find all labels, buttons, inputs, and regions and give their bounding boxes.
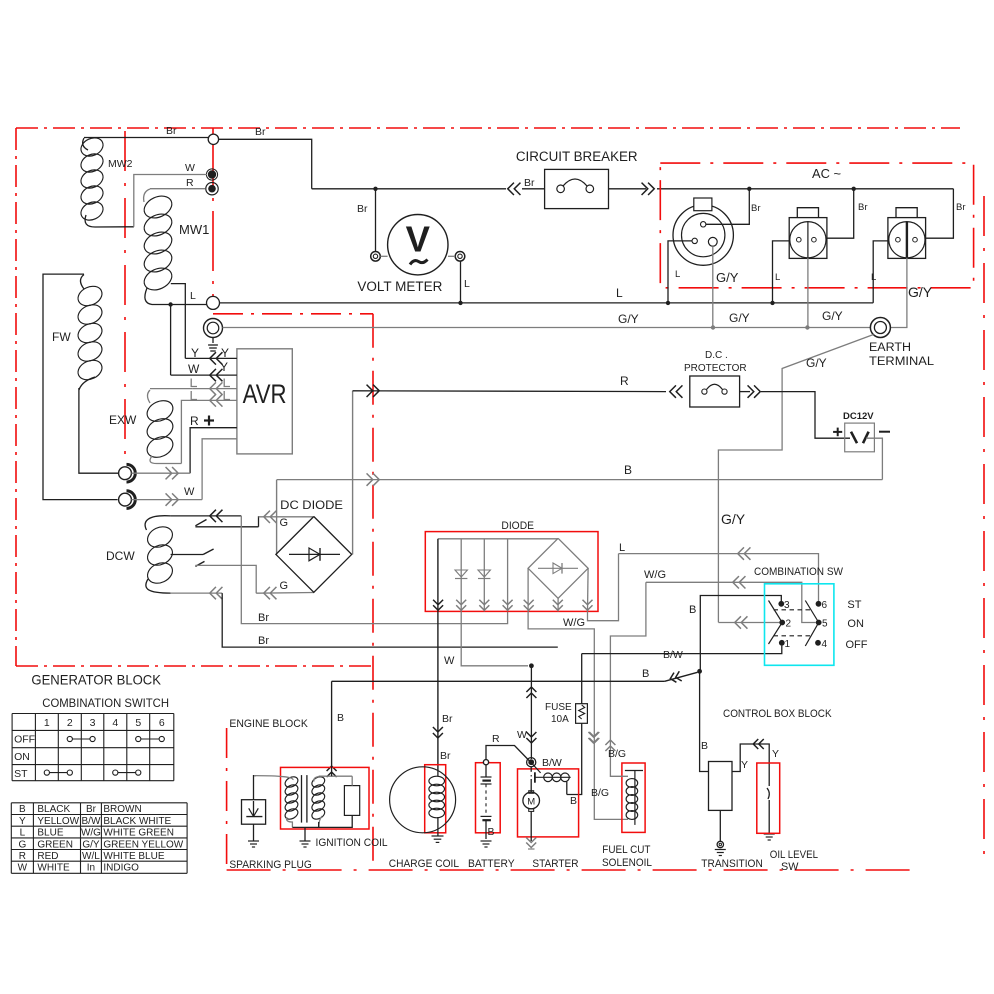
svg-text:G: G <box>280 580 289 592</box>
svg-text:1: 1 <box>785 639 791 650</box>
svg-text:G/Y: G/Y <box>721 511 746 527</box>
svg-text:4: 4 <box>822 639 828 650</box>
svg-text:Br: Br <box>86 804 97 815</box>
svg-text:L: L <box>616 286 623 300</box>
svg-text:Br: Br <box>255 126 266 138</box>
svg-text:YELLOW: YELLOW <box>37 816 79 827</box>
svg-text:G/Y: G/Y <box>806 356 827 370</box>
svg-text:AVR: AVR <box>243 379 287 409</box>
svg-text:G/Y: G/Y <box>618 312 639 326</box>
svg-text:GREEN: GREEN <box>37 839 73 850</box>
svg-text:W: W <box>184 486 195 498</box>
svg-text:Y: Y <box>741 759 748 771</box>
svg-text:B: B <box>488 826 495 838</box>
svg-text:D.C .: D.C . <box>705 350 728 361</box>
svg-text:Br: Br <box>858 202 868 213</box>
svg-text:Y: Y <box>772 748 779 760</box>
svg-text:G: G <box>18 839 26 850</box>
svg-text:STARTER: STARTER <box>532 858 578 870</box>
svg-text:OFF: OFF <box>846 639 868 651</box>
svg-text:BLUE: BLUE <box>37 828 63 839</box>
svg-text:Br: Br <box>442 713 453 725</box>
svg-text:L: L <box>190 290 196 302</box>
svg-text:B/G: B/G <box>591 787 609 799</box>
svg-text:V: V <box>406 218 431 259</box>
svg-text:R: R <box>492 733 500 745</box>
svg-text:CONTROL BOX BLOCK: CONTROL BOX BLOCK <box>723 708 832 720</box>
svg-text:FUEL CUT: FUEL CUT <box>602 844 651 856</box>
svg-text:ST: ST <box>847 599 861 611</box>
svg-text:W: W <box>18 863 28 874</box>
svg-text:6: 6 <box>822 600 828 611</box>
svg-text:G/Y: G/Y <box>716 270 739 285</box>
svg-text:W: W <box>185 162 195 174</box>
svg-text:OFF: OFF <box>14 734 35 746</box>
svg-text:DC12V: DC12V <box>843 411 874 422</box>
svg-text:RED: RED <box>37 851 58 862</box>
svg-text:FW: FW <box>52 330 71 344</box>
svg-text:Y: Y <box>220 360 228 374</box>
svg-text:B: B <box>689 604 696 616</box>
svg-text:WHITE BLUE: WHITE BLUE <box>103 851 164 862</box>
svg-text:L: L <box>675 269 680 280</box>
svg-text:ST: ST <box>14 768 28 780</box>
svg-text:AC ~: AC ~ <box>812 167 841 181</box>
svg-text:R: R <box>620 374 629 388</box>
svg-text:GREEN YELLOW: GREEN YELLOW <box>103 839 183 850</box>
svg-text:R: R <box>190 414 199 428</box>
svg-text:Br: Br <box>258 635 269 647</box>
svg-text:OIL LEVEL: OIL LEVEL <box>770 849 818 861</box>
svg-text:VOLT METER: VOLT METER <box>357 279 442 294</box>
svg-text:CIRCUIT BREAKER: CIRCUIT BREAKER <box>516 149 638 164</box>
svg-text:In: In <box>87 863 95 874</box>
svg-text:W/L: W/L <box>82 851 100 862</box>
svg-text:Br: Br <box>751 203 761 214</box>
svg-text:B: B <box>701 740 708 752</box>
svg-text:TERMINAL: TERMINAL <box>869 354 934 368</box>
svg-text:WHITE GREEN: WHITE GREEN <box>103 828 174 839</box>
svg-text:10A: 10A <box>551 714 569 725</box>
svg-text:B: B <box>570 795 577 807</box>
svg-text:ON: ON <box>14 751 30 763</box>
svg-text:2: 2 <box>786 619 792 630</box>
svg-text:COMBINATION SW: COMBINATION SW <box>754 566 844 578</box>
svg-text:B/G: B/G <box>608 748 626 760</box>
svg-text:COMBINATION SWITCH: COMBINATION SWITCH <box>42 696 169 710</box>
svg-text:W: W <box>444 655 455 667</box>
svg-text:L: L <box>464 278 470 290</box>
svg-text:G: G <box>280 517 289 529</box>
svg-text:G/Y: G/Y <box>82 839 100 850</box>
svg-text:R: R <box>186 177 194 189</box>
svg-text:Y: Y <box>19 816 26 827</box>
svg-text:SOLENOIL: SOLENOIL <box>602 857 652 869</box>
svg-text:GENERATOR BLOCK: GENERATOR BLOCK <box>31 672 161 688</box>
svg-text:WHITE: WHITE <box>37 863 70 874</box>
svg-text:Br: Br <box>956 202 966 213</box>
svg-text:B: B <box>337 712 344 724</box>
svg-text:ENGINE BLOCK: ENGINE BLOCK <box>229 718 308 730</box>
svg-text:L: L <box>619 542 625 554</box>
svg-text:W: W <box>188 362 200 376</box>
svg-text:3: 3 <box>90 717 96 729</box>
svg-text:TRANSITION: TRANSITION <box>701 858 763 870</box>
svg-text:G/Y: G/Y <box>822 309 843 323</box>
svg-text:5: 5 <box>822 619 828 630</box>
svg-text:B/W: B/W <box>663 649 683 661</box>
svg-text:IGNITION COIL: IGNITION COIL <box>316 837 388 849</box>
svg-text:W/G: W/G <box>644 569 666 581</box>
svg-text:DIODE: DIODE <box>501 520 534 532</box>
svg-text:Y: Y <box>221 346 229 360</box>
svg-text:B/W: B/W <box>542 757 562 769</box>
svg-text:BLACK WHITE: BLACK WHITE <box>103 816 171 827</box>
svg-text:MW1: MW1 <box>179 222 209 237</box>
svg-text:DCW: DCW <box>106 549 135 563</box>
svg-text:4: 4 <box>112 717 118 729</box>
svg-text:W/G: W/G <box>563 617 585 629</box>
svg-text:2: 2 <box>67 717 73 729</box>
svg-text:B: B <box>19 804 26 815</box>
svg-text:L: L <box>20 828 26 839</box>
svg-text:L: L <box>871 272 876 283</box>
svg-text:G/Y: G/Y <box>908 284 933 300</box>
svg-text:Br: Br <box>166 125 177 137</box>
svg-text:BATTERY: BATTERY <box>468 858 515 870</box>
svg-text:SW: SW <box>781 861 799 873</box>
svg-text:W/G: W/G <box>81 828 101 839</box>
svg-text:G/Y: G/Y <box>729 311 750 325</box>
svg-text:R: R <box>19 851 26 862</box>
svg-text:B/W: B/W <box>82 816 101 827</box>
svg-text:5: 5 <box>135 717 141 729</box>
svg-text:PROTECTOR: PROTECTOR <box>684 363 747 374</box>
svg-text:Br: Br <box>258 612 269 624</box>
svg-text:1: 1 <box>44 717 50 729</box>
svg-text:M: M <box>527 797 535 808</box>
svg-text:BROWN: BROWN <box>103 804 141 815</box>
svg-text:INDIGO: INDIGO <box>103 863 139 874</box>
svg-text:FUSE: FUSE <box>545 702 572 713</box>
svg-text:W: W <box>517 729 527 741</box>
svg-text:Br: Br <box>357 203 368 215</box>
svg-text:EARTH: EARTH <box>869 340 911 354</box>
svg-text:L: L <box>775 272 780 283</box>
svg-text:CHARGE COIL: CHARGE COIL <box>389 858 459 870</box>
svg-text:MW2: MW2 <box>108 158 133 170</box>
svg-text:B: B <box>624 463 632 477</box>
svg-text:SPARKING PLUG: SPARKING PLUG <box>229 859 311 871</box>
svg-text:Br: Br <box>524 177 535 189</box>
svg-text:ON: ON <box>847 618 864 630</box>
svg-text:EXW: EXW <box>109 413 137 427</box>
svg-text:Br: Br <box>440 750 451 762</box>
svg-text:Y: Y <box>191 346 199 360</box>
svg-text:B: B <box>642 668 649 680</box>
svg-text:6: 6 <box>159 717 165 729</box>
svg-text:BLACK: BLACK <box>37 804 70 815</box>
svg-text:DC DIODE: DC DIODE <box>280 498 343 512</box>
